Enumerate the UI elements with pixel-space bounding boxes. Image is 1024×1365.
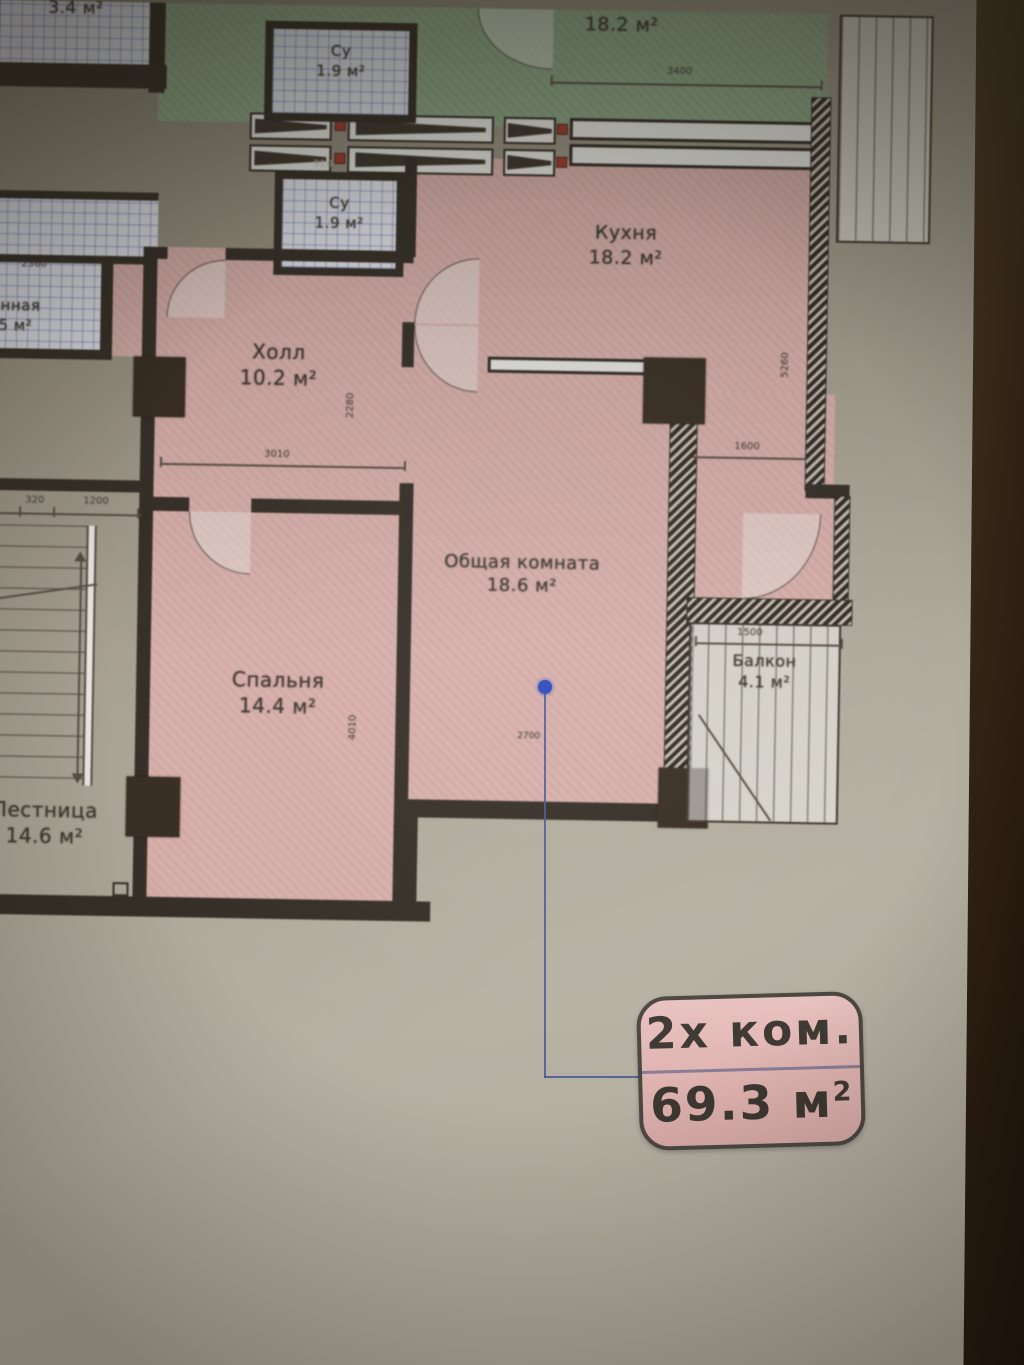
column bbox=[643, 357, 706, 424]
dim-green-width: 3400 bbox=[667, 66, 693, 77]
dim-su-mid: 910 bbox=[313, 158, 332, 169]
wall-balcony-top bbox=[687, 598, 851, 625]
unit-area-superscript: 2 bbox=[832, 1076, 854, 1108]
room-name: Холл bbox=[204, 338, 354, 367]
room-label-balcony: Балкон 4.1 м² bbox=[696, 650, 833, 694]
wall bbox=[0, 348, 112, 360]
room-name: Су bbox=[284, 193, 394, 214]
room-name: Лестница bbox=[0, 796, 110, 824]
room-name: Су bbox=[283, 41, 399, 63]
wall bbox=[100, 260, 114, 356]
room-area: 1.9 м² bbox=[284, 212, 394, 233]
section-marker bbox=[112, 882, 128, 896]
dim-balcony-width: 1500 bbox=[737, 627, 763, 638]
room-area: 18.6 м² bbox=[422, 573, 622, 600]
dim-tick bbox=[160, 457, 162, 467]
room-label-green: 18.2 м² bbox=[551, 12, 691, 39]
dim-edge-width: 2360 bbox=[21, 258, 47, 269]
dim-tick bbox=[53, 507, 55, 517]
vent-marker bbox=[557, 124, 568, 135]
wall-bedroom-top-b bbox=[251, 498, 411, 515]
unit-type-label: 2х ком. bbox=[640, 1003, 859, 1060]
table-surface-edge bbox=[952, 0, 1024, 1365]
room-area: 10.2 м² bbox=[203, 364, 353, 393]
room-name: Балкон bbox=[696, 650, 832, 673]
dim-kitchen-depth: 5260 bbox=[780, 312, 792, 378]
room-label-tiled-small: 3.4 м² bbox=[28, 0, 124, 20]
neighbor-balcony bbox=[836, 15, 934, 245]
floor-plan: 3400 910 2360 3010 2280 5260 1600 1500 2… bbox=[0, 0, 960, 977]
unit-marker-dot bbox=[538, 680, 552, 694]
stairs-arrowhead-top bbox=[74, 551, 86, 561]
unit-area-value: 69.3 м bbox=[649, 1074, 833, 1134]
unit-info-badge: 2х ком. 69.3 м2 bbox=[636, 991, 866, 1151]
dim-tick bbox=[841, 639, 843, 649]
vent-block bbox=[347, 146, 493, 176]
dim-tick bbox=[821, 80, 823, 90]
leader-line-horizontal bbox=[544, 1076, 642, 1078]
dim-hall-depth: 2280 bbox=[345, 358, 357, 418]
room-name: Кухня bbox=[551, 220, 701, 247]
vent-marker bbox=[334, 153, 345, 164]
dim-kitchen-side: 1600 bbox=[734, 441, 760, 452]
unit-area-label: 69.3 м2 bbox=[642, 1073, 861, 1134]
room-label-edge-partial: анная 5 м² bbox=[0, 295, 71, 336]
dim-tick bbox=[551, 76, 553, 86]
vent-marker bbox=[556, 157, 567, 168]
leader-line-vertical bbox=[544, 694, 546, 1078]
dim-tick bbox=[137, 508, 139, 518]
vent-block bbox=[504, 117, 556, 145]
corridor-tiled-band bbox=[0, 196, 159, 259]
dim-stairs-2: 1200 bbox=[83, 496, 109, 507]
photo-background: 3400 910 2360 3010 2280 5260 1600 1500 2… bbox=[0, 0, 1024, 1365]
wall-stairs-top bbox=[0, 478, 142, 493]
wall-kitchen-left-b bbox=[402, 322, 415, 367]
badge-divider bbox=[642, 1065, 860, 1074]
wall-bedroom-top-a bbox=[151, 497, 189, 512]
window-bar bbox=[570, 118, 820, 144]
column bbox=[125, 776, 180, 837]
dim-tick bbox=[19, 506, 21, 516]
column bbox=[133, 356, 186, 417]
stairs-treads bbox=[0, 524, 87, 784]
window-bar bbox=[569, 144, 819, 170]
dim-hall-width: 3010 bbox=[264, 449, 290, 460]
dim-line bbox=[0, 512, 141, 516]
wall-living-divider bbox=[488, 357, 650, 376]
room-label-stairs: Лестница 14.6 м² bbox=[0, 796, 110, 850]
room-name: Общая комната bbox=[422, 549, 622, 576]
room-name: анная bbox=[0, 295, 71, 316]
room-area: 1.9 м² bbox=[283, 60, 399, 82]
room-name: Спальня bbox=[198, 666, 358, 695]
room-area: 18.2 м² bbox=[550, 244, 700, 271]
room-area: 4.1 м² bbox=[696, 671, 832, 694]
room-label-living: Общая комната 18.6 м² bbox=[422, 549, 623, 599]
room-label-hall: Холл 10.2 м² bbox=[203, 338, 354, 393]
wall-kitchen-left-a bbox=[404, 157, 418, 257]
dim-tick bbox=[695, 636, 697, 646]
dim-living-width: 2700 bbox=[517, 731, 540, 741]
dim-bedroom-depth: 4010 bbox=[347, 682, 359, 740]
dim-stairs-1: 320 bbox=[25, 495, 44, 506]
room-area: 18.2 м² bbox=[551, 12, 691, 39]
dim-tick bbox=[404, 461, 406, 471]
room-area: 5 м² bbox=[0, 315, 70, 336]
room-label-su-top: Су 1.9 м² bbox=[283, 41, 400, 82]
room-area: 14.4 м² bbox=[198, 692, 358, 721]
room-label-bedroom: Спальня 14.4 м² bbox=[198, 666, 359, 721]
room-label-kitchen: Кухня 18.2 м² bbox=[550, 220, 701, 272]
room-area: 14.6 м² bbox=[0, 822, 110, 850]
vent-block bbox=[503, 149, 555, 177]
room-area: 3.4 м² bbox=[28, 0, 124, 20]
room-label-su-mid: Су 1.9 м² bbox=[284, 193, 395, 234]
wall bbox=[0, 62, 167, 89]
